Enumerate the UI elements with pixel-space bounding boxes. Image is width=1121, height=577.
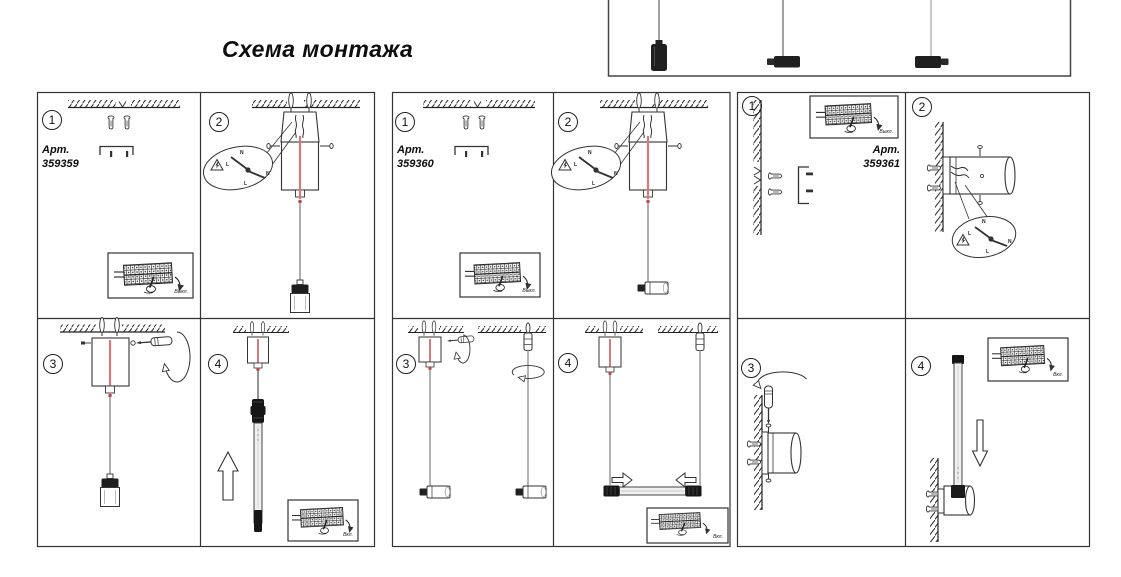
wall-hatch	[754, 395, 762, 510]
cable-bead	[428, 367, 431, 370]
spot-head	[516, 486, 547, 498]
spot-head	[420, 486, 451, 498]
anchor-pin	[463, 116, 469, 129]
cable-bead	[646, 200, 650, 204]
suspension-hook	[289, 93, 294, 112]
wall-hatch	[930, 458, 938, 542]
wall-canopy-cylinder	[943, 146, 1015, 205]
cable-bead	[608, 372, 611, 375]
article-number-359361: Арт. 359361	[839, 144, 900, 171]
step-badge-a4: 4	[208, 354, 228, 374]
suspension-hook	[100, 318, 105, 337]
suspension-hook	[603, 321, 607, 336]
suspension-hook	[432, 321, 436, 336]
terminal-block-inset: Выкл.	[108, 253, 193, 298]
cable-bead	[256, 368, 259, 371]
power-off-label: Выкл.	[879, 129, 893, 135]
terminal-block-inset: Выкл.	[810, 96, 898, 138]
terminal-block-inset: Выкл.	[460, 253, 540, 297]
suspension-hook	[637, 93, 642, 112]
panel-a-step-4: Вкл.	[218, 322, 358, 541]
wire-label-l: L	[592, 181, 595, 187]
wire-label-n: N	[614, 171, 618, 177]
wire-label-l: L	[574, 162, 577, 168]
step-badge-b4: 4	[558, 353, 578, 373]
anchor-pin	[768, 189, 781, 195]
anchor-pin	[479, 116, 485, 129]
side-screw	[81, 342, 85, 345]
step-badge-c1: 1	[742, 96, 762, 116]
pendant-socket	[291, 280, 310, 313]
wire-label-l: L	[226, 162, 229, 168]
mounting-bracket	[100, 147, 133, 158]
article-value: 359359	[42, 158, 79, 172]
page-title: Схема монтажа	[222, 36, 413, 63]
step-badge-c3: 3	[741, 358, 761, 378]
suspension-hook	[261, 322, 264, 336]
screwdriver-icon	[136, 336, 172, 346]
cable-bead	[108, 394, 112, 398]
article-prefix: Арт.	[839, 144, 900, 158]
terminal-block-inset: Вкл.	[288, 500, 358, 541]
step-badge-a3: 3	[43, 354, 63, 374]
up-arrow	[218, 452, 238, 500]
anchor-pin	[768, 173, 781, 179]
panel-a-step-3	[60, 318, 190, 507]
step-badge-a1: 1	[42, 110, 62, 130]
suspension-hook	[250, 322, 253, 336]
terminal-block-inset: Вкл.	[647, 508, 728, 543]
wall-hatch	[935, 122, 943, 232]
power-off-label: Выкл.	[522, 288, 536, 294]
wall-hatch	[753, 100, 761, 235]
power-on-label: Вкл.	[713, 534, 723, 540]
suspension-hook	[613, 321, 617, 336]
anchor-pin	[108, 116, 114, 129]
power-on-label: Вкл.	[1053, 372, 1063, 378]
step-badge-a2: 2	[209, 112, 229, 132]
suspension-hook	[115, 318, 120, 337]
step-badge-b2: 2	[558, 112, 578, 132]
tube-lamp	[951, 355, 965, 498]
article-number-359360: Арт. 359360	[397, 144, 434, 171]
diagram-artwork: Выкл.	[0, 0, 1121, 577]
anchor-pin	[747, 459, 760, 465]
wall-canopy-cylinder	[762, 424, 801, 482]
suspension-hook	[307, 93, 312, 112]
ceiling-hatch	[408, 325, 546, 333]
anchor-pin	[124, 116, 130, 129]
step-badge-c2: 2	[912, 97, 932, 117]
article-prefix: Арт.	[42, 144, 79, 158]
mounting-bracket	[799, 167, 814, 204]
anchor-pin	[747, 441, 760, 447]
down-arrow	[973, 420, 988, 466]
article-value: 359361	[839, 158, 900, 172]
power-off-label: Выкл.	[174, 289, 188, 295]
ceiling-hatch	[423, 99, 535, 109]
wire-label-n: N	[266, 171, 270, 177]
suspension-hook	[422, 321, 426, 336]
suspension-hook	[655, 93, 660, 112]
rotation-arrow	[758, 372, 807, 387]
spot-head	[638, 282, 669, 294]
ceiling-hatch	[252, 99, 360, 109]
panel-b-step-1: Выкл.	[423, 99, 540, 297]
panel-a-step-1: Выкл.	[68, 99, 193, 298]
screwdriver-icon	[765, 386, 773, 424]
ceiling-hatch	[600, 99, 708, 109]
step-badge-b3: 3	[396, 354, 416, 374]
anchor-pin	[927, 165, 940, 171]
wire-label-l: L	[968, 231, 971, 237]
article-prefix: Арт.	[397, 144, 434, 158]
wire-label-n: N	[240, 150, 244, 156]
cable-bead	[298, 200, 302, 204]
slide-right-arrow	[612, 473, 632, 487]
article-number-359359: Арт. 359359	[42, 144, 79, 171]
slide-left-arrow	[676, 473, 696, 487]
overview-lamps-box	[609, 0, 1071, 76]
wire-label-l: L	[986, 249, 989, 255]
panel-b-step-3	[408, 321, 546, 498]
screwdriver-icon	[447, 336, 474, 344]
anchor-pin	[927, 185, 940, 191]
installation-diagram-page: Выкл.	[0, 0, 1121, 577]
ceiling-hatch	[60, 324, 165, 334]
wire-label-n: N	[588, 150, 592, 156]
step-badge-c4: 4	[911, 356, 931, 376]
terminal-block-inset: Вкл.	[988, 338, 1068, 381]
tube-lamp-horizontal	[604, 486, 702, 497]
step-badge-b1: 1	[395, 112, 415, 132]
panel-359359: Выкл.	[60, 93, 360, 541]
panel-c-step-4: Вкл.	[926, 338, 1068, 542]
panel-b-step-4: Вкл.	[585, 321, 728, 543]
side-screw	[131, 341, 135, 345]
panel-c-step-3	[747, 372, 806, 510]
article-value: 359360	[397, 158, 434, 172]
wire-label-l: L	[244, 181, 247, 187]
tube-lamp	[254, 423, 262, 532]
wire-label-n: N	[982, 219, 986, 225]
cable-connector	[251, 399, 266, 423]
mounting-bracket	[455, 147, 488, 158]
power-on-label: Вкл.	[343, 532, 353, 538]
ceiling-hatch	[68, 99, 180, 109]
pendant-socket	[101, 474, 120, 507]
wire-label-n: N	[1008, 239, 1012, 245]
panel-c-step-2: N L L N	[927, 122, 1019, 262]
